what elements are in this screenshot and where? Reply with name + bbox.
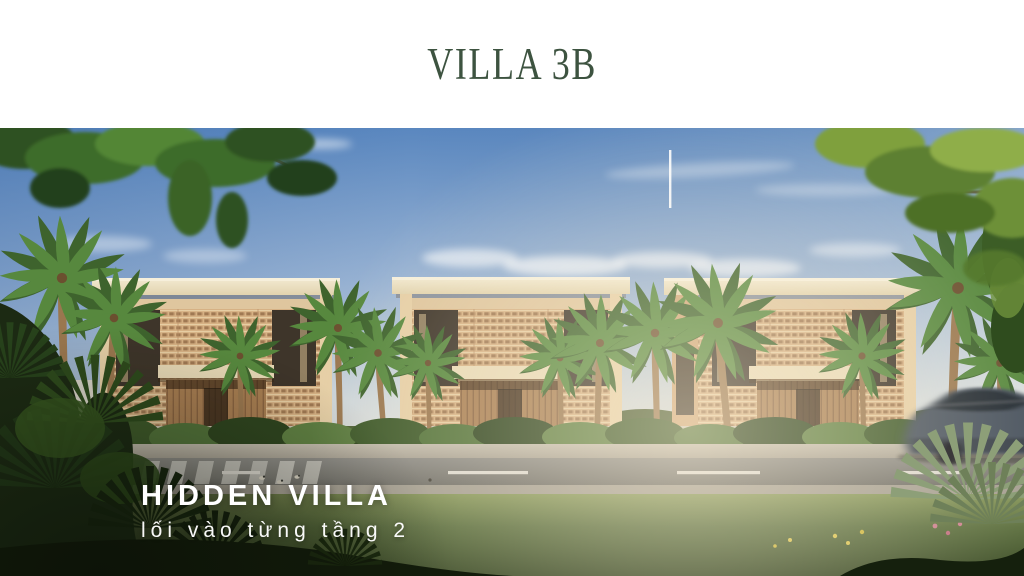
caption-block: HIDDEN VILLA lối vào từng tầng 2 xyxy=(141,480,410,543)
page-title: VILLA 3B xyxy=(427,38,597,90)
caption-subheading: lối vào từng tầng 2 xyxy=(141,519,410,543)
title-band: VILLA 3B xyxy=(0,0,1024,128)
caption-heading: HIDDEN VILLA xyxy=(141,480,410,513)
